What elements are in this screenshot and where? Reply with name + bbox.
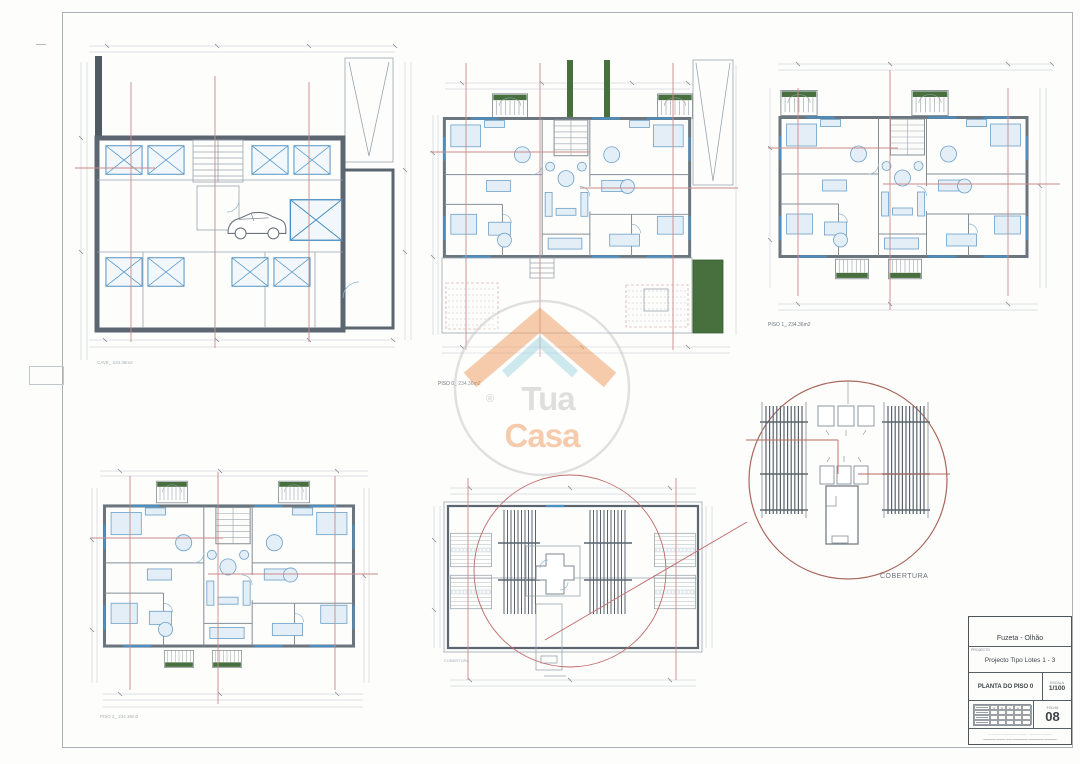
detail-leader-line <box>545 522 747 640</box>
registered-mark: ® <box>486 393 494 405</box>
title-block: Fuzeta - Olhão PROJECTO Projecto Tipo Lo… <box>968 616 1072 745</box>
watermark-logo: ® Tua Casa <box>452 298 632 478</box>
brand-casa: Casa <box>505 417 582 454</box>
revision-label-cell <box>974 720 990 725</box>
revision-table: 4 3 1 1 <box>969 701 1033 728</box>
brand-tua: Tua <box>521 380 576 417</box>
title-block-revision-row: 4 3 1 1 <box>969 701 1071 729</box>
project-name: Projecto Tipo Lotes 1 - 3 <box>969 657 1071 664</box>
title-block-title-row: PLANTA DO PISO 0 ESCALA 1/100 <box>969 673 1071 701</box>
title-block-location: Fuzeta - Olhão <box>969 617 1071 647</box>
title-block-fine-print: — ——— ————— ——— · ———— ——— ———— ——— —— —… <box>969 729 1071 744</box>
scale-value: 1/100 <box>1049 685 1065 692</box>
fine-print-line2: ———— ——— —— ————— ————— ———— <box>983 737 1056 741</box>
detail-shaft <box>826 486 858 544</box>
project-label: PROJECTO <box>971 648 990 652</box>
scale-box: ESCALA 1/100 <box>1042 673 1071 700</box>
drawing-title: PLANTA DO PISO 0 <box>969 673 1042 700</box>
detail-label: COBERTURA <box>880 573 928 580</box>
title-block-project: PROJECTO Projecto Tipo Lotes 1 - 3 <box>969 647 1071 673</box>
sheet-number-box: FOLHA 08 <box>1033 701 1071 728</box>
detail-circle-drawing: COBERTURA <box>742 378 957 593</box>
sheet-number: 08 <box>1045 710 1059 723</box>
architectural-sheet: CAVE_ 234.36m2 PISO 0_ 234.36m2 <box>0 0 1080 764</box>
fine-print-line1: — ——— ————— ——— · ———— ——— <box>989 732 1052 736</box>
